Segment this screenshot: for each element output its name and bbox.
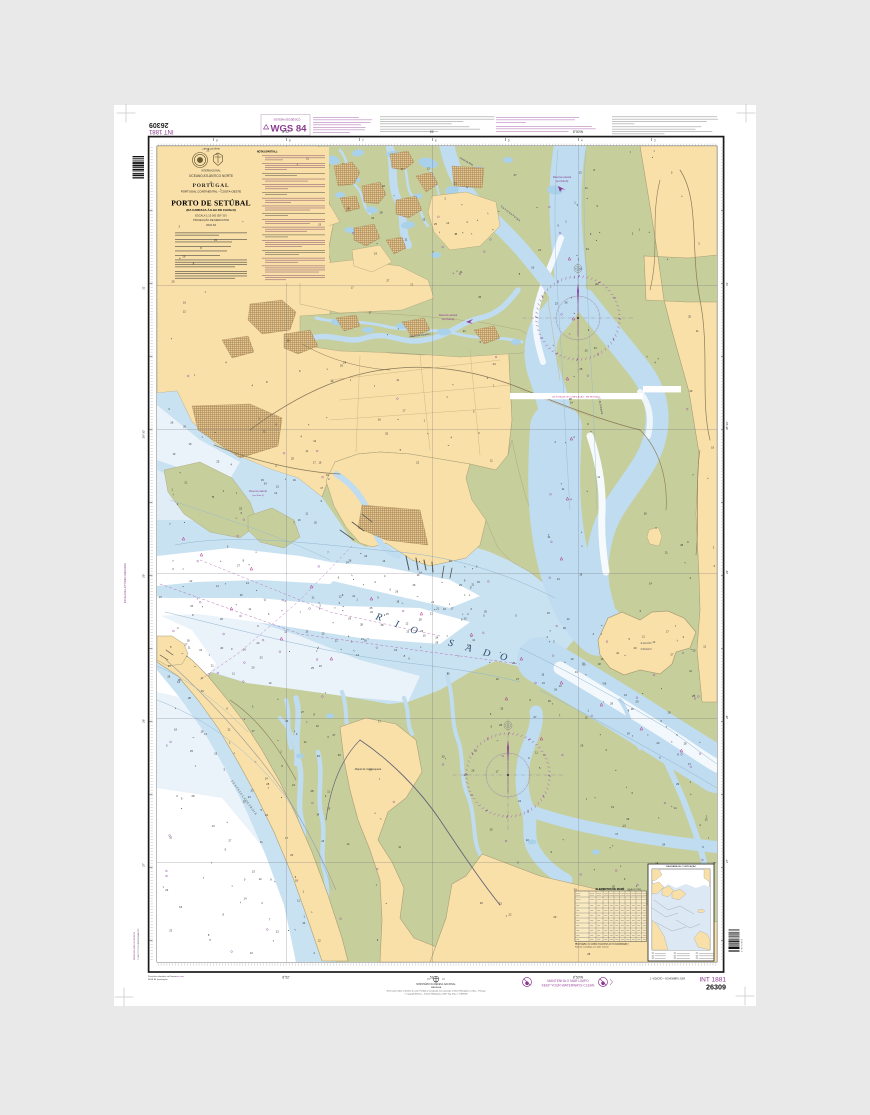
svg-text:38°30': 38°30' (142, 430, 146, 439)
svg-text:9 7 8 9 7 2 8 0 9: 9 7 8 9 7 2 8 0 9 (742, 939, 744, 952)
svg-text:ver nota: ver nota (176, 975, 185, 978)
svg-text:Reserva natural: Reserva natural (249, 490, 267, 493)
svg-text:26309: 26309 (149, 121, 169, 128)
svg-text:1.ª EDIÇÃO – NOVEMBRO 2009: 1.ª EDIÇÃO – NOVEMBRO 2009 (650, 977, 686, 981)
svg-text:29': 29' (725, 570, 729, 574)
svg-text:OCEANO ATLÂNTICO NORTE: OCEANO ATLÂNTICO NORTE (189, 174, 233, 178)
svg-text:NOTAS (PARTIAL) :: NOTAS (PARTIAL) : (257, 151, 278, 154)
svg-text:Observação: as sondas encontra: Observação: as sondas encontram-se em ac… (575, 943, 628, 946)
svg-text:8°52': 8°52' (282, 976, 290, 980)
svg-text:31': 31' (142, 286, 146, 290)
svg-text:MANTENHA O MAR LIMPO: MANTENHA O MAR LIMPO (547, 979, 589, 983)
svg-text:(TIDAL NOTES): (TIDAL NOTES) (627, 888, 642, 891)
svg-text:CARTA DA SÉRIE: CARTA DA SÉRIE (202, 148, 220, 151)
svg-text:PORTUGAL CONTINENTAL – COSTA-O: PORTUGAL CONTINENTAL – COSTA-OESTE (181, 190, 241, 194)
svg-text:REPRODUÇÃO INTERDITA: REPRODUÇÃO INTERDITA (133, 932, 136, 960)
svg-text:28': 28' (725, 715, 729, 719)
svg-text:26309: 26309 (706, 983, 726, 992)
svg-text:ILHA DO: ILHA DO (640, 641, 652, 645)
svg-text:51': 51' (430, 130, 435, 134)
svg-text:ESCALA DE LATITUDES CRESCIDAS: ESCALA DE LATITUDES CRESCIDAS (124, 563, 127, 603)
svg-text:Posições referidas ao Datum: Posições referidas ao Datum (148, 975, 176, 978)
svg-text:38°30': 38°30' (725, 421, 729, 430)
svg-text:DIAGRAMA DE COMPILAÇÃO: DIAGRAMA DE COMPILAÇÃO (666, 865, 697, 868)
svg-text:Remark: soundings are under re: Remark: soundings are under revision (575, 947, 609, 949)
svg-text:29': 29' (142, 574, 146, 578)
svg-text:MARINHA: MARINHA (431, 986, 442, 989)
svg-text:Reserva natural: Reserva natural (553, 175, 572, 179)
svg-text:Mapel de Carrasqueira: Mapel de Carrasqueira (355, 767, 382, 771)
svg-text:27': 27' (725, 859, 729, 863)
svg-text:ESCALA 1:15 000 (38° 30'): ESCALA 1:15 000 (38° 30') (195, 214, 227, 218)
svg-text:INT 1881: INT 1881 (148, 128, 173, 134)
svg-text:AS SONDAS DE COMPILAÇÃO · EM R: AS SONDAS DE COMPILAÇÃO · EM REVISÃO (552, 396, 599, 399)
svg-text:© Copyright Marinha – Institut: © Copyright Marinha – Instituto Hidrográ… (404, 993, 467, 996)
svg-text:(DA CARRACA À ILHA DO CAVALO): (DA CARRACA À ILHA DO CAVALO) (186, 207, 235, 212)
svg-text:PORTO DE SETÚBAL: PORTO DE SETÚBAL (171, 198, 251, 208)
svg-text:INTERNACIONAL: INTERNACIONAL (201, 170, 221, 173)
svg-text:28': 28' (142, 719, 146, 723)
svg-text:(ver Nota 5): (ver Nota 5) (442, 318, 455, 321)
svg-text:Reserva natural: Reserva natural (439, 313, 458, 317)
svg-text:(ver Nota 5): (ver Nota 5) (252, 494, 264, 497)
svg-text:CAVALO: CAVALO (640, 647, 652, 651)
svg-text:8°52': 8°52' (282, 130, 290, 134)
svg-text:SISTEMA GEODÉSICO: SISTEMA GEODÉSICO (274, 119, 301, 122)
svg-text:MINISTÉRIO DA DEFESA NACIONAL: MINISTÉRIO DA DEFESA NACIONAL (416, 983, 456, 986)
svg-text:WGS 84: WGS 84 (206, 223, 216, 227)
svg-text:WGS 84 (realização: WGS 84 (realização (148, 978, 168, 981)
svg-text:8°50'W: 8°50'W (573, 130, 583, 134)
svg-text:KEEP YOUR WATERWAYS CLEAN: KEEP YOUR WATERWAYS CLEAN (542, 984, 595, 988)
svg-text:Reservados todos os direitos: Reservados todos os direitos de autor. P… (387, 990, 486, 993)
svg-text:27': 27' (142, 863, 146, 867)
svg-text:PORTUGAL: PORTUGAL (193, 183, 230, 189)
svg-text:31': 31' (725, 282, 729, 286)
svg-text:© INSTITUTO HIDROGRÁFICO: © INSTITUTO HIDROGRÁFICO (137, 928, 140, 960)
svg-text:(ver Nota 5): (ver Nota 5) (556, 180, 569, 183)
